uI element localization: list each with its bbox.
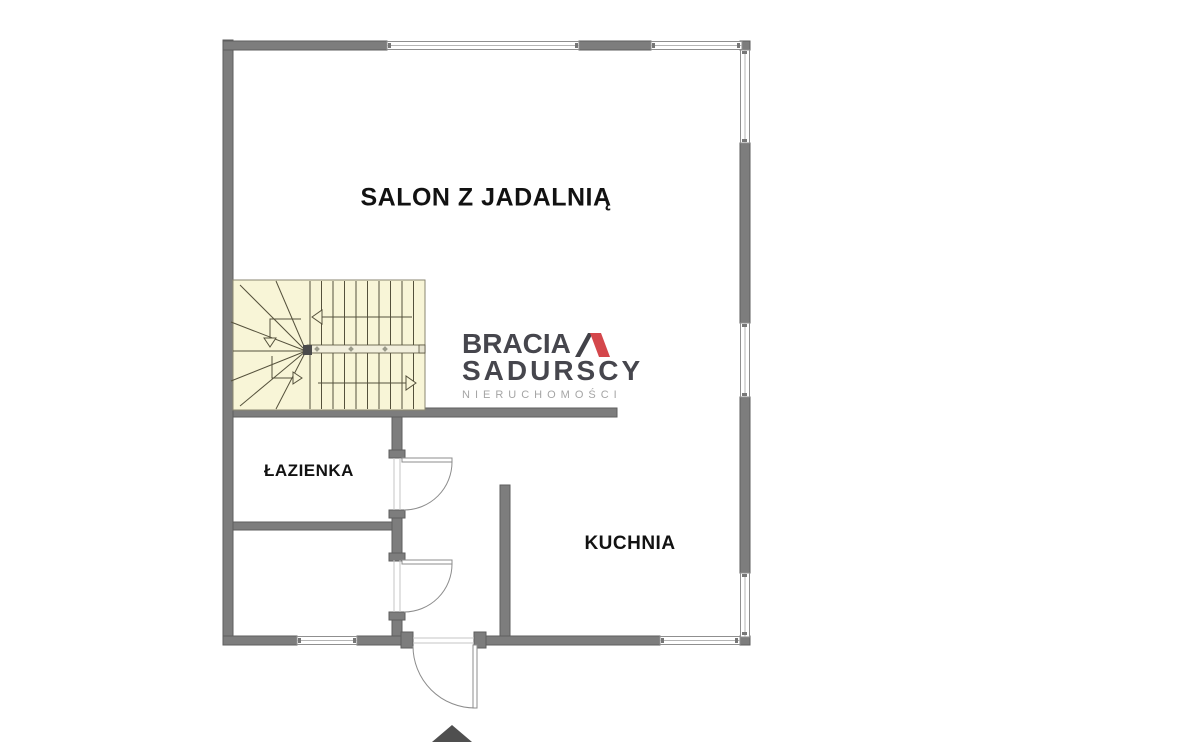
stair-newel [303, 345, 312, 355]
door2-jamb-bottom [389, 612, 405, 620]
room-label-kuchnia: KUCHNIA [584, 533, 675, 555]
wall-kitchen [500, 485, 510, 636]
wall-right-seg1 [740, 143, 750, 323]
wall-top-seg1 [223, 41, 387, 50]
door-bathroom [394, 458, 452, 510]
door-lower-room [394, 560, 452, 612]
floorplan-canvas: SALON Z JADALNIĄ ŁAZIENKA KUCHNIA BRACIA… [0, 0, 1200, 742]
logo: BRACIA SADURSCY NIERUCHOMOŚCI [462, 331, 643, 401]
entrance-jamb-left [401, 632, 413, 648]
entrance-arrow [432, 725, 472, 742]
wall-bathroom-bottom [233, 522, 402, 530]
door-entrance [413, 638, 477, 708]
window-bottom-1 [297, 637, 357, 645]
door1-jamb-top [389, 450, 405, 458]
logo-line1-text: BRACIA [462, 331, 571, 357]
wall-bottom-seg1 [223, 636, 297, 645]
window-right-3 [741, 573, 750, 637]
wall-left [223, 40, 233, 645]
window-top-1 [387, 42, 579, 50]
stair-rail [307, 345, 425, 353]
logo-line3-text: NIERUCHOMOŚCI [462, 389, 643, 401]
window-right-1 [741, 50, 750, 143]
interior-walls [233, 408, 617, 648]
staircase [231, 280, 425, 410]
wall-hall-seg1 [392, 417, 402, 450]
room-label-lazienka: ŁAZIENKA [264, 461, 354, 481]
wall-right-seg2 [740, 397, 750, 573]
window-top-2 [651, 42, 742, 50]
window-bottom-2 [660, 637, 740, 645]
logo-mark-icon [575, 333, 611, 357]
room-label-salon: SALON Z JADALNIĄ [360, 184, 611, 213]
window-right-2 [741, 323, 750, 397]
logo-line2-text: SADURSCY [462, 357, 643, 385]
wall-bottom-seg3 [474, 636, 660, 645]
wall-top-seg2 [579, 41, 651, 50]
doors [394, 458, 477, 708]
door1-jamb-bottom [389, 510, 405, 518]
wall-hall-seg2 [392, 518, 402, 553]
